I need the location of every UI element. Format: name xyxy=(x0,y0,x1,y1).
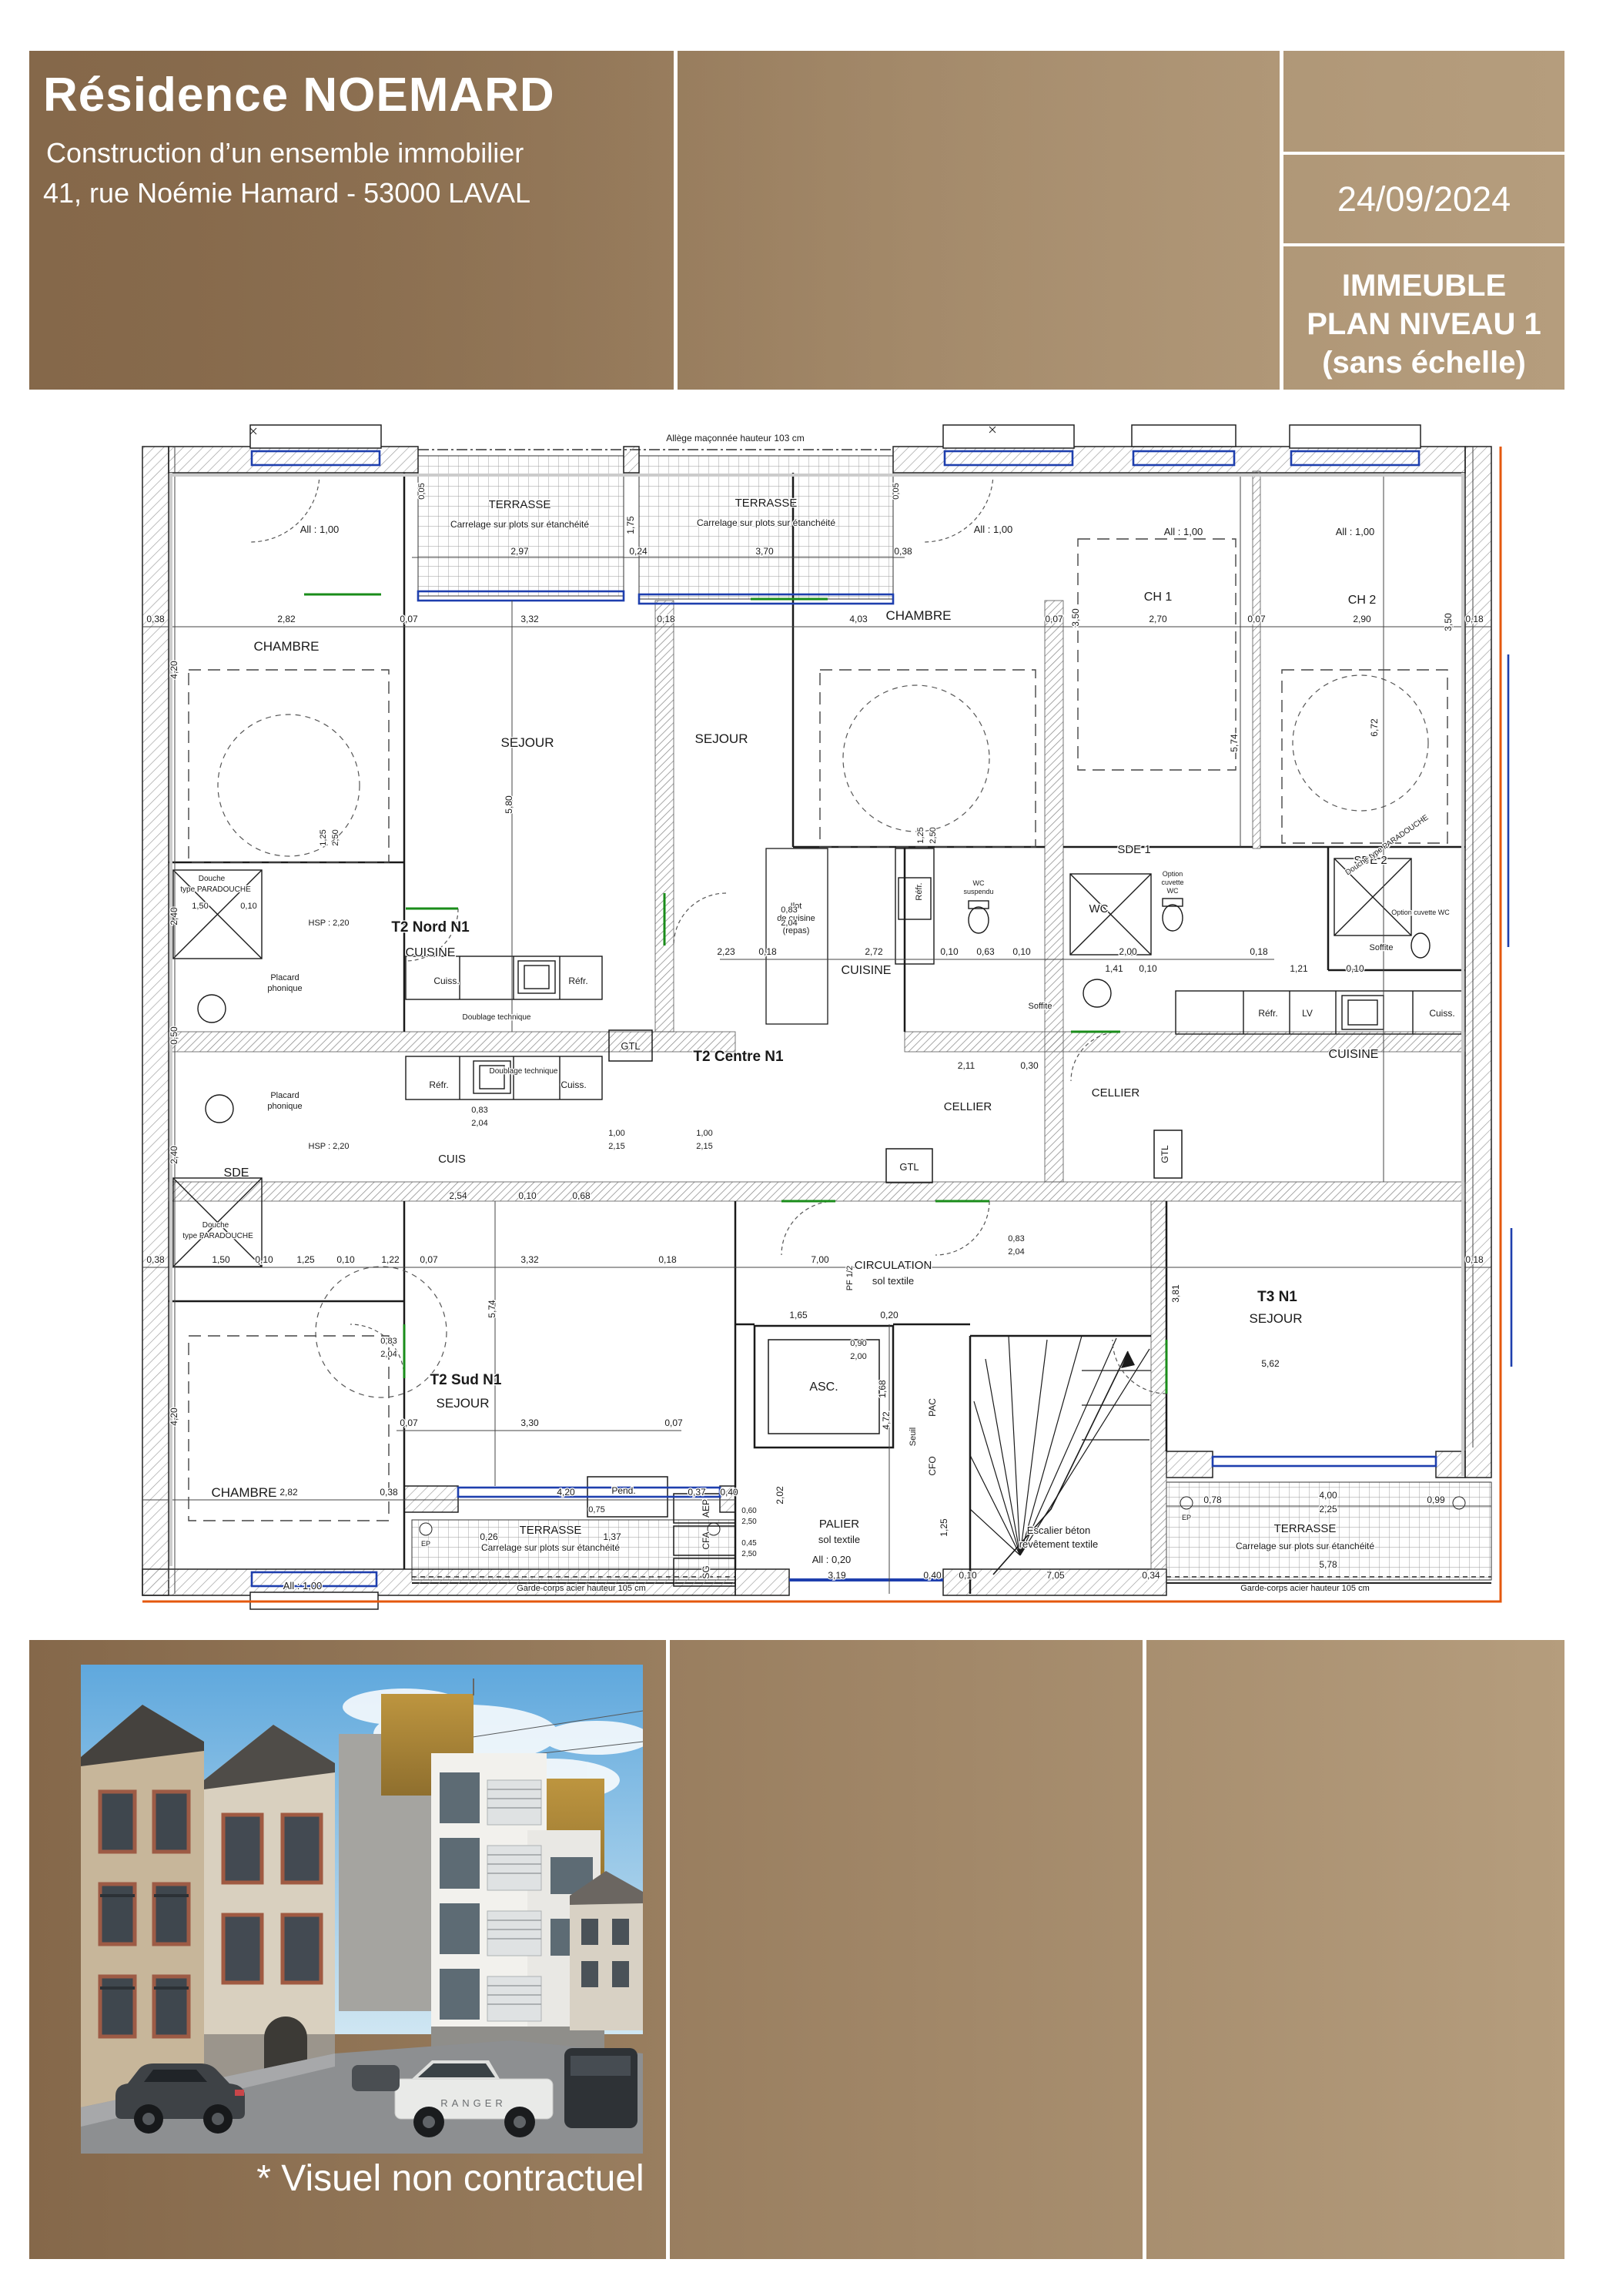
title-block-right: 24/09/2024 IMMEUBLE PLAN NIVEAU 1 (sans … xyxy=(1283,51,1564,390)
plan-label: Douche xyxy=(202,1221,229,1230)
plan-label: Soffite xyxy=(1370,943,1394,952)
plan-label: All : 1,00 xyxy=(1336,526,1375,537)
plan-label: revêtement textile xyxy=(1019,1538,1099,1550)
plan-label: EP xyxy=(1182,1514,1191,1521)
plan-label: 5,74 xyxy=(1229,734,1240,752)
footer-band: RANGER * Visuel non contractuel xyxy=(29,1640,1564,2259)
plan-label: phonique xyxy=(267,1102,302,1111)
plan-label: 0,26 xyxy=(480,1531,498,1542)
plan-label: EP xyxy=(421,1540,430,1548)
plan-label: sol textile xyxy=(872,1275,914,1287)
doc-title: IMMEUBLE PLAN NIVEAU 1 (sans échelle) xyxy=(1283,246,1564,382)
plan-label: WC xyxy=(1167,887,1179,895)
plan-label: CHAMBRE xyxy=(885,608,951,623)
plan-label: 5,62 xyxy=(1261,1358,1280,1369)
wall-lining xyxy=(170,473,1464,1566)
plan-label: SEJOUR xyxy=(1250,1311,1303,1326)
plan-label: 0,10 xyxy=(240,902,256,911)
plan-label: 0,75 xyxy=(588,1505,604,1514)
plan-label: 2,82 xyxy=(277,614,296,624)
plan-label: All : 1,00 xyxy=(283,1580,323,1591)
plan-label: CFO xyxy=(927,1456,938,1475)
plan-label: GTL xyxy=(1160,1145,1170,1163)
plan-label: 5,80 xyxy=(504,795,514,814)
plan-label: SEJOUR xyxy=(695,731,748,746)
doc-line2: PLAN NIVEAU 1 xyxy=(1283,305,1564,343)
plan-label: 4,03 xyxy=(849,614,868,624)
plan-label: CHAMBRE xyxy=(253,639,319,654)
plan-label: 3,50 xyxy=(1070,608,1081,627)
plan-label: 0,18 xyxy=(758,946,777,957)
plan-label: 0,07 xyxy=(400,614,418,624)
stair-up-arrow-icon xyxy=(1121,1351,1135,1368)
plan-label: CHAMBRE xyxy=(211,1485,276,1500)
plan-label: 2,11 xyxy=(958,1060,975,1071)
plan-label: 0,78 xyxy=(1203,1494,1222,1505)
plan-label: Placard xyxy=(270,1091,299,1100)
plan-label: 3,19 xyxy=(828,1570,846,1581)
plan-label: 5,78 xyxy=(1319,1559,1337,1570)
plan-label: 2,54 xyxy=(449,1190,467,1201)
plan-label: 0,30 xyxy=(1020,1060,1039,1071)
plan-label: 0,45 xyxy=(741,1539,757,1548)
plan-label: 4,20 xyxy=(169,661,179,679)
plan-label: 1,00 xyxy=(608,1129,624,1138)
outer-walls xyxy=(142,447,1491,1595)
plan-label: 2,50 xyxy=(741,1518,757,1526)
plan-label: 3,32 xyxy=(520,1254,539,1265)
plan-label: 2,25 xyxy=(1319,1504,1337,1514)
terraces xyxy=(412,450,1491,1583)
plan-label: Douche type PARADOUCHE xyxy=(1344,813,1431,877)
plan-label: 1,25 xyxy=(319,829,328,845)
plan-label: CIRCULATION xyxy=(855,1259,932,1272)
party-walls xyxy=(169,471,1465,1569)
title-block: Résidence NOEMARD Construction d’un ense… xyxy=(29,51,674,390)
windows xyxy=(250,425,1511,1609)
plan-label: 0,90 xyxy=(850,1339,866,1348)
plan-label: CELLIER xyxy=(944,1100,992,1113)
plan-label: 0,34 xyxy=(1142,1570,1160,1581)
plan-label: 1,50 xyxy=(212,1254,230,1265)
plan-label: T2 Nord N1 xyxy=(391,919,470,935)
plan-label: 0,07 xyxy=(420,1254,438,1265)
plan-label: 2,72 xyxy=(865,946,883,957)
plan-label: SDE xyxy=(224,1166,249,1180)
plan-label: Carrelage sur plots sur étanchéité xyxy=(1236,1541,1374,1551)
plan-label: 0,07 xyxy=(1045,614,1063,624)
plan-label: 0,38 xyxy=(894,546,912,557)
plan-label: 0,05 xyxy=(417,483,427,499)
plan-label: 0,37 xyxy=(688,1487,706,1498)
plan-label: 7,05 xyxy=(1046,1570,1065,1581)
plan-label: 0,18 xyxy=(1250,946,1268,957)
plan-label: 0,07 xyxy=(664,1417,683,1428)
plan-label: 2,04 xyxy=(781,919,797,928)
plan-label: Carrelage sur plots sur étanchéité xyxy=(481,1542,620,1553)
ep-drain-icon xyxy=(420,1523,432,1535)
plan-label: PALIER xyxy=(819,1518,859,1531)
plan-label: 1,37 xyxy=(603,1531,621,1542)
plan-label: 2,04 xyxy=(1008,1247,1024,1257)
plan-label: Cuiss. xyxy=(1429,1008,1454,1019)
plan-label: Option cuvette WC xyxy=(1391,909,1450,916)
plan-label: 0,68 xyxy=(572,1190,591,1201)
plan-label: 0,24 xyxy=(629,546,648,557)
plan-label: 1,41 xyxy=(1105,963,1123,974)
plan-label: 2,82 xyxy=(279,1487,298,1498)
plan-label: T2 Centre N1 xyxy=(693,1049,784,1065)
plan-label: 0,50 xyxy=(169,1026,179,1045)
plan-label: Pend. xyxy=(611,1485,635,1496)
plan-label: 3,81 xyxy=(1170,1284,1181,1303)
plan-label: LV xyxy=(1302,1008,1313,1019)
plan-label: 2,50 xyxy=(741,1550,757,1558)
plan-label: 0,60 xyxy=(741,1507,757,1515)
plan-label: TERRASSE xyxy=(520,1524,582,1537)
plan-label: 1,25 xyxy=(296,1254,315,1265)
plan-label: 0,18 xyxy=(657,614,675,624)
plan-label: 0,18 xyxy=(1465,1254,1484,1265)
plan-label: 2,40 xyxy=(169,907,179,925)
plan-label: 0,83 xyxy=(471,1106,487,1115)
plan-label: 2,15 xyxy=(608,1142,624,1151)
plan-label: 6,72 xyxy=(1369,718,1380,737)
plan-label: 0,20 xyxy=(880,1310,899,1320)
plan-label: GTL xyxy=(621,1040,640,1052)
plan-label: 7,00 xyxy=(811,1254,829,1265)
plan-label: CH 2 xyxy=(1348,594,1377,607)
plan-label: ASC. xyxy=(809,1381,838,1394)
plan-label: WC xyxy=(1089,902,1109,915)
dimension-lines xyxy=(142,427,1491,1594)
plan-label: CUISINE xyxy=(1329,1048,1379,1061)
plan-label: 2,50 xyxy=(929,827,938,843)
plan-label: 0,07 xyxy=(400,1417,418,1428)
plan-label: type PARADOUCHE xyxy=(182,1232,253,1240)
plan-label: AEP xyxy=(701,1499,711,1518)
plan-label: TERRASSE xyxy=(489,498,551,511)
plan-label: Soffite xyxy=(1029,1002,1052,1011)
subtitle-line2: 41, rue Noémie Hamard - 53000 LAVAL xyxy=(43,177,530,209)
doc-line3: (sans échelle) xyxy=(1283,343,1564,382)
plan-label: 0,10 xyxy=(1346,963,1364,974)
photo-street-right xyxy=(570,1871,643,2030)
plan-label: 0,18 xyxy=(658,1254,677,1265)
plan-label: Placard xyxy=(270,973,299,982)
plan-label: 0,38 xyxy=(380,1487,398,1498)
plan-label: HSP : 2,20 xyxy=(309,1142,350,1151)
plan-label: WC xyxy=(973,879,985,887)
plan-label: Option xyxy=(1163,870,1183,878)
plan-label: sol textile xyxy=(818,1534,860,1545)
building-photo: RANGER xyxy=(81,1665,643,2154)
plan-label: 0,10 xyxy=(1012,946,1031,957)
plan-label: 1,68 xyxy=(877,1380,888,1398)
plan-label: CFA xyxy=(701,1531,711,1549)
plan-label: Doublage technique xyxy=(490,1067,558,1076)
header-divider-1 xyxy=(674,51,678,390)
plan-label: Allège maçonnée hauteur 103 cm xyxy=(666,433,804,443)
plan-label: 4,20 xyxy=(557,1487,575,1498)
kitchen-counters xyxy=(406,848,1464,1099)
plan-label: 0,38 xyxy=(146,614,165,624)
doc-line1: IMMEUBLE xyxy=(1283,266,1564,305)
plan-label: 1,25 xyxy=(939,1518,949,1537)
plan-label: 4,72 xyxy=(881,1411,892,1430)
plan-label: Réfr. xyxy=(915,882,924,900)
plan-label: 1,50 xyxy=(192,902,208,911)
plan-label: 2,15 xyxy=(696,1142,712,1151)
plan-label: 2,70 xyxy=(1149,614,1167,624)
plan-annotations: CHAMBRESEJOURCHAMBRESEJOURCH 1CH 2SDE 1S… xyxy=(146,433,1484,1593)
plan-label: 2,97 xyxy=(510,546,529,557)
plan-label: TERRASSE xyxy=(735,497,798,510)
date-label: 24/09/2024 xyxy=(1283,155,1564,243)
plan-label: 1,65 xyxy=(789,1310,808,1320)
page-title: Résidence NOEMARD xyxy=(43,68,555,122)
plan-label: PAC xyxy=(927,1398,938,1417)
plan-label: All : 1,00 xyxy=(1164,526,1203,537)
ep-drain-icon xyxy=(1453,1497,1465,1509)
plan-label: CUIS xyxy=(438,1153,466,1166)
plan-label: 2,00 xyxy=(1119,946,1137,957)
plan-label: 0,40 xyxy=(720,1487,738,1498)
plan-label: 0,10 xyxy=(1139,963,1157,974)
plan-label: Garde-corps acier hauteur 105 cm xyxy=(1240,1584,1370,1593)
plan-label: CUISINE xyxy=(406,946,456,959)
plan-label: 5,74 xyxy=(487,1300,497,1318)
plan-label: 4,20 xyxy=(169,1407,179,1426)
plan-label: cuvette xyxy=(1161,879,1183,886)
plan-label: 3,70 xyxy=(755,546,774,557)
plan-label: 1,25 xyxy=(916,827,925,843)
plan-label: 1,21 xyxy=(1290,963,1308,974)
ep-drain-icon xyxy=(1180,1497,1193,1509)
plan-label: T3 N1 xyxy=(1257,1289,1297,1305)
plan-label: 0,83 xyxy=(1008,1234,1024,1243)
plan-label: Doublage technique xyxy=(463,1013,531,1022)
plan-label: 0,07 xyxy=(1247,614,1266,624)
plan-label: 2,00 xyxy=(850,1352,866,1361)
plan-label: 1,00 xyxy=(696,1129,712,1138)
plan-label: All : 1,00 xyxy=(974,524,1013,535)
plan-label: Escalier béton xyxy=(1027,1525,1090,1536)
plan-label: 0,40 xyxy=(923,1570,942,1581)
plan-label: 2,02 xyxy=(775,1486,785,1504)
plan-label: Carrelage sur plots sur étanchéité xyxy=(697,517,835,528)
plan-label: CELLIER xyxy=(1092,1086,1140,1099)
plan-label: Douche xyxy=(199,875,226,883)
plan-label: SEJOUR xyxy=(437,1396,490,1411)
plan-label: GTL xyxy=(899,1161,919,1173)
plan-label: CH 1 xyxy=(1144,591,1173,604)
truck-model-text: RANGER xyxy=(440,2097,507,2109)
plan-label: 0,18 xyxy=(1465,614,1484,624)
floor-plan: CHAMBRESEJOURCHAMBRESEJOURCH 1CH 2SDE 1S… xyxy=(58,416,1567,1632)
plan-label: All : 1,00 xyxy=(300,524,340,535)
plan-label: 3,32 xyxy=(520,614,539,624)
footer-divider-2 xyxy=(1143,1640,1146,2259)
plan-label: 0,10 xyxy=(940,946,959,957)
plan-label: 1,75 xyxy=(625,516,636,534)
plan-label: HSP : 2,20 xyxy=(309,919,350,928)
plan-label: type PARADOUCHE xyxy=(180,885,251,894)
plan-label: PF 1/2 xyxy=(845,1266,855,1290)
plan-label: 0,10 xyxy=(336,1254,355,1265)
plan-label: 2,23 xyxy=(717,946,735,957)
plan-label: 0,10 xyxy=(255,1254,273,1265)
plan-label: 0,83 xyxy=(380,1337,397,1346)
plan-label: SG xyxy=(701,1565,711,1578)
plan-label: Réfr. xyxy=(1258,1008,1277,1019)
plan-label: 0,99 xyxy=(1427,1494,1445,1505)
plan-label: 2,40 xyxy=(169,1146,179,1164)
plan-label: All : 0,20 xyxy=(812,1554,852,1565)
plan-label: 2,90 xyxy=(1353,614,1371,624)
plan-label: 0,38 xyxy=(146,1254,165,1265)
subtitle-line1: Construction d’un ensemble immobilier xyxy=(46,137,524,169)
plan-label: 2,04 xyxy=(380,1350,397,1359)
plan-label: 3,30 xyxy=(520,1417,539,1428)
plan-label: Cuiss. xyxy=(561,1079,586,1090)
plan-label: Garde-corps acier hauteur 105 cm xyxy=(517,1584,646,1593)
header-band: Résidence NOEMARD Construction d’un ense… xyxy=(29,51,1564,390)
plan-label: SDE 1 xyxy=(1117,843,1150,856)
plan-label: phonique xyxy=(267,984,302,993)
plan-label: 0,10 xyxy=(518,1190,537,1201)
plan-label: 1,22 xyxy=(381,1254,400,1265)
plan-label: 3,50 xyxy=(1443,613,1454,631)
photo-caption: * Visuel non contractuel xyxy=(131,2157,770,2200)
plan-label: 2,04 xyxy=(471,1119,487,1128)
plan-label: T2 Sud N1 xyxy=(430,1372,502,1388)
plan-label: CUISINE xyxy=(842,964,892,977)
plan-label: 0,05 xyxy=(892,483,901,499)
plan-label: 4,00 xyxy=(1319,1490,1337,1501)
plan-label: Réfr. xyxy=(568,976,587,986)
plan-label: Réfr. xyxy=(429,1079,448,1090)
plan-label: Cuiss. xyxy=(433,976,459,986)
plan-label: Carrelage sur plots sur étanchéité xyxy=(450,519,589,530)
plan-label: 0,63 xyxy=(976,946,995,957)
plan-label: suspendu xyxy=(963,888,993,895)
plan-label: 0,83 xyxy=(781,905,797,915)
plan-label: TERRASSE xyxy=(1274,1522,1337,1535)
plan-label: SEJOUR xyxy=(501,735,554,750)
plan-label: 0,10 xyxy=(959,1570,977,1581)
plan-label: Seuil xyxy=(909,1427,918,1446)
plan-label: 2,50 xyxy=(331,829,340,845)
plan-sheet: Résidence NOEMARD Construction d’un ense… xyxy=(0,0,1623,2296)
